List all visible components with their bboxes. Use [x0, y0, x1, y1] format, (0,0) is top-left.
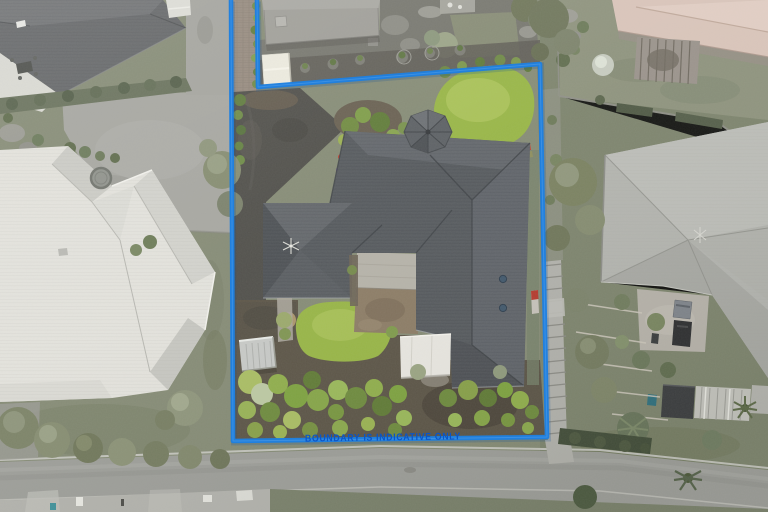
boundary-disclaimer: BOUNDARY IS INDICATIVE ONLY: [305, 431, 461, 444]
aerial-photo: BOUNDARY IS INDICATIVE ONLY: [0, 0, 768, 512]
